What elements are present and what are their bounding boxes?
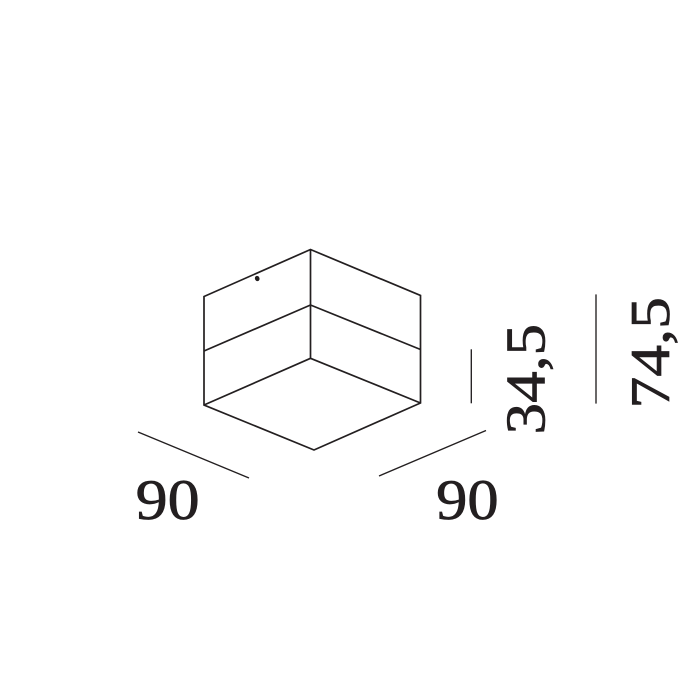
svg-text:34,5: 34,5 xyxy=(496,324,558,435)
svg-text:90: 90 xyxy=(436,469,499,532)
svg-text:90: 90 xyxy=(136,469,200,532)
svg-text:74,5: 74,5 xyxy=(620,297,682,409)
